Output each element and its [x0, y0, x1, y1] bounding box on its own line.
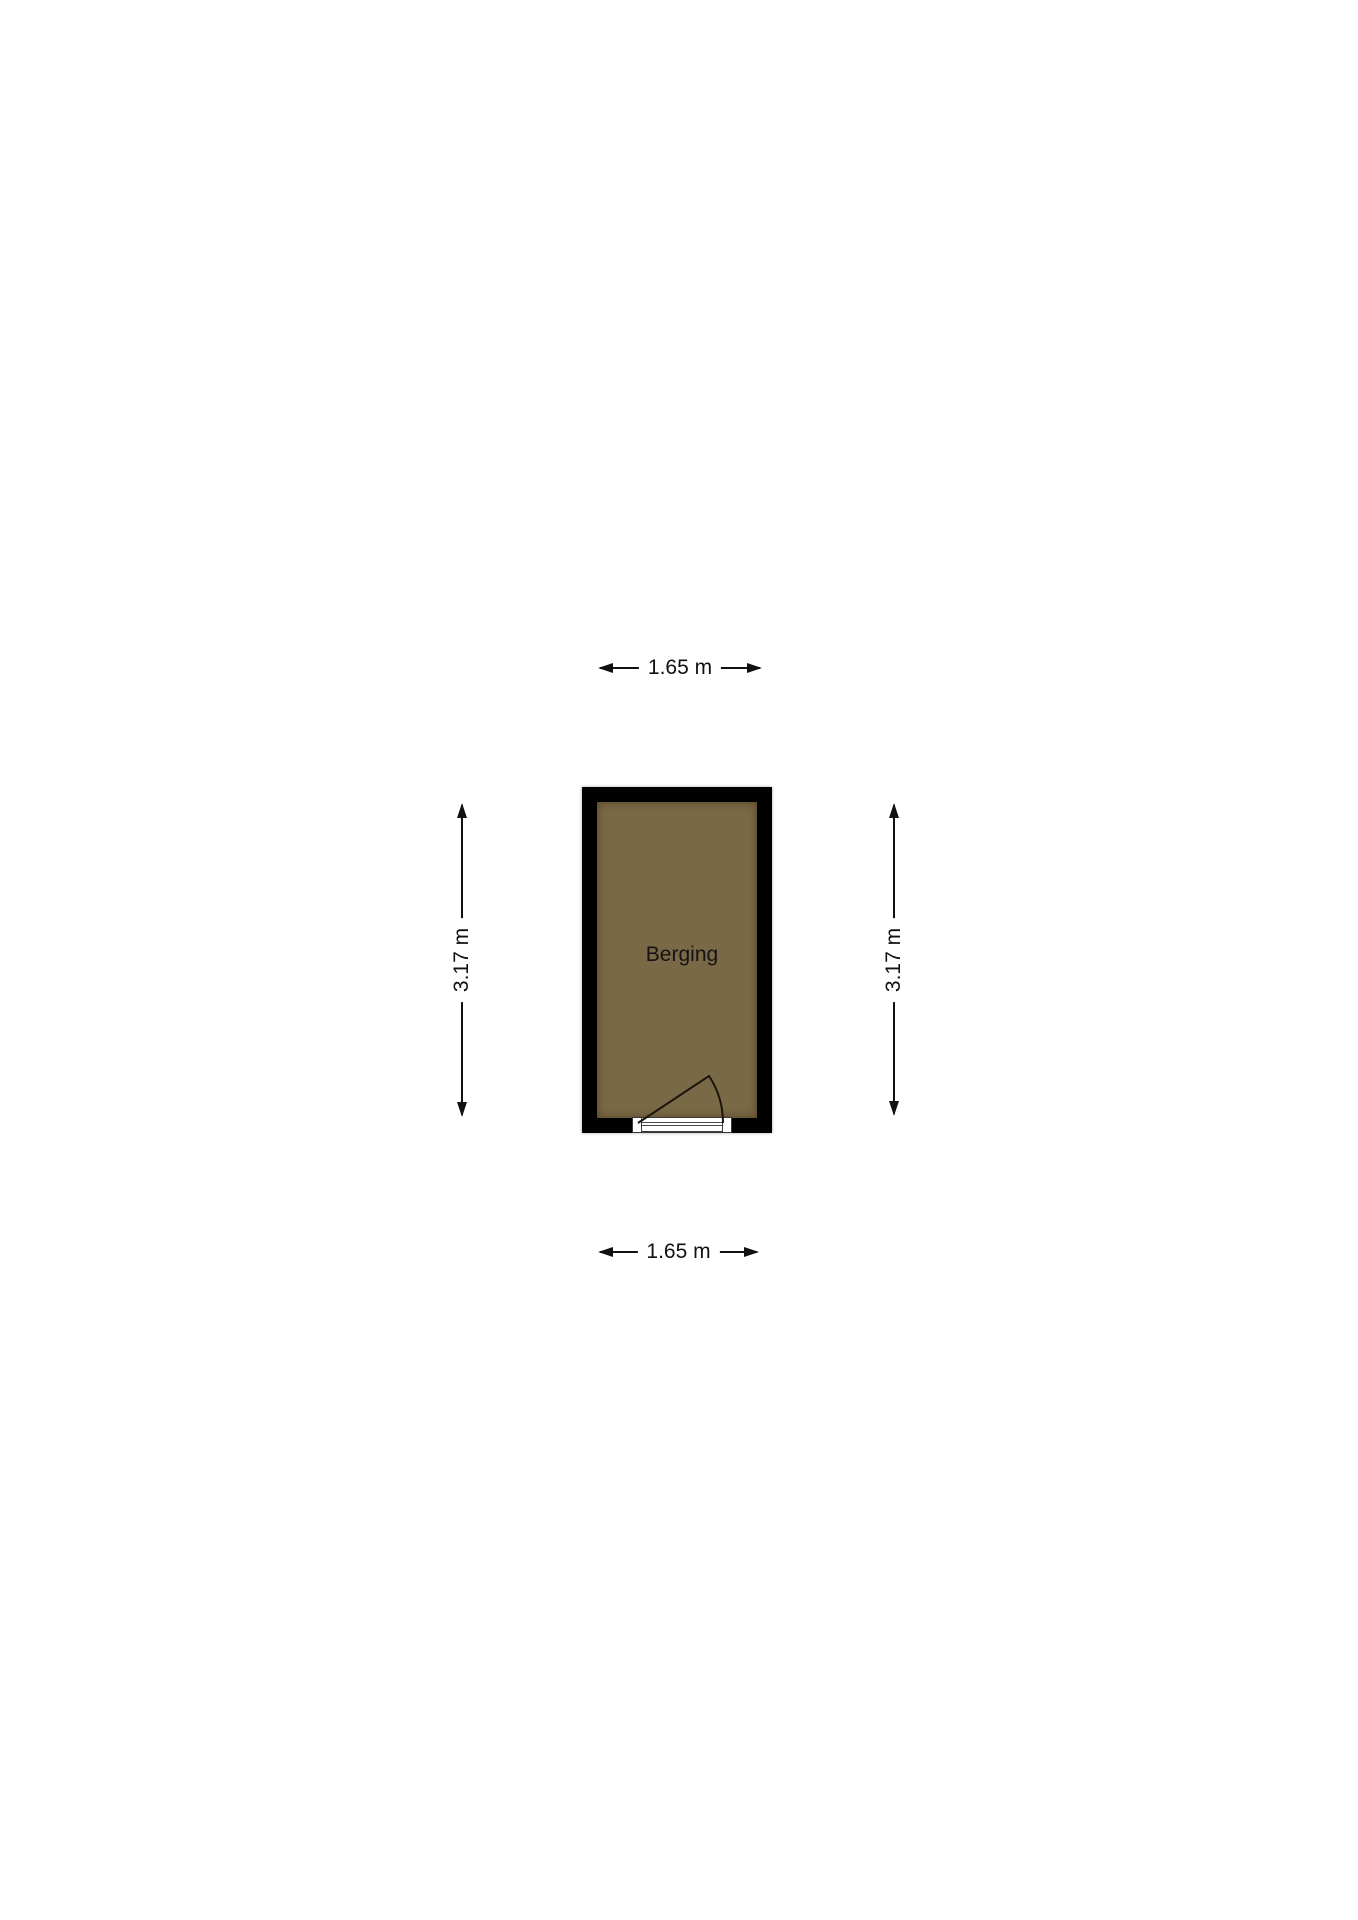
arrow-left-icon: [598, 1247, 613, 1257]
dimension-label: 1.65 m: [637, 1240, 719, 1264]
dimension-label: 3.17 m: [450, 918, 474, 1002]
floorplan-canvas: 1.65 m 3.17 m 3.17 m 1.65 m Berging: [0, 0, 1358, 1920]
dimension-height-left: 3.17 m: [451, 803, 473, 1117]
arrow-right-icon: [744, 1247, 759, 1257]
arrow-left-icon: [598, 663, 613, 673]
dimension-label: 1.65 m: [639, 656, 721, 680]
dimension-width-bottom: 1.65 m: [598, 1241, 759, 1263]
door-jamb-right: [722, 1117, 732, 1133]
door-jamb-left: [632, 1117, 642, 1133]
room-label: Berging: [646, 943, 718, 967]
arrow-up-icon: [889, 803, 899, 818]
arrow-down-icon: [889, 1101, 899, 1116]
door-threshold: [642, 1117, 722, 1133]
dimension-width-top: 1.65 m: [598, 657, 762, 679]
door-opening: [632, 1117, 732, 1133]
arrow-down-icon: [457, 1102, 467, 1117]
room-berging: Berging: [582, 787, 772, 1133]
dimension-label: 3.17 m: [882, 917, 906, 1001]
arrow-up-icon: [457, 803, 467, 818]
dimension-height-right: 3.17 m: [883, 803, 905, 1116]
arrow-right-icon: [747, 663, 762, 673]
